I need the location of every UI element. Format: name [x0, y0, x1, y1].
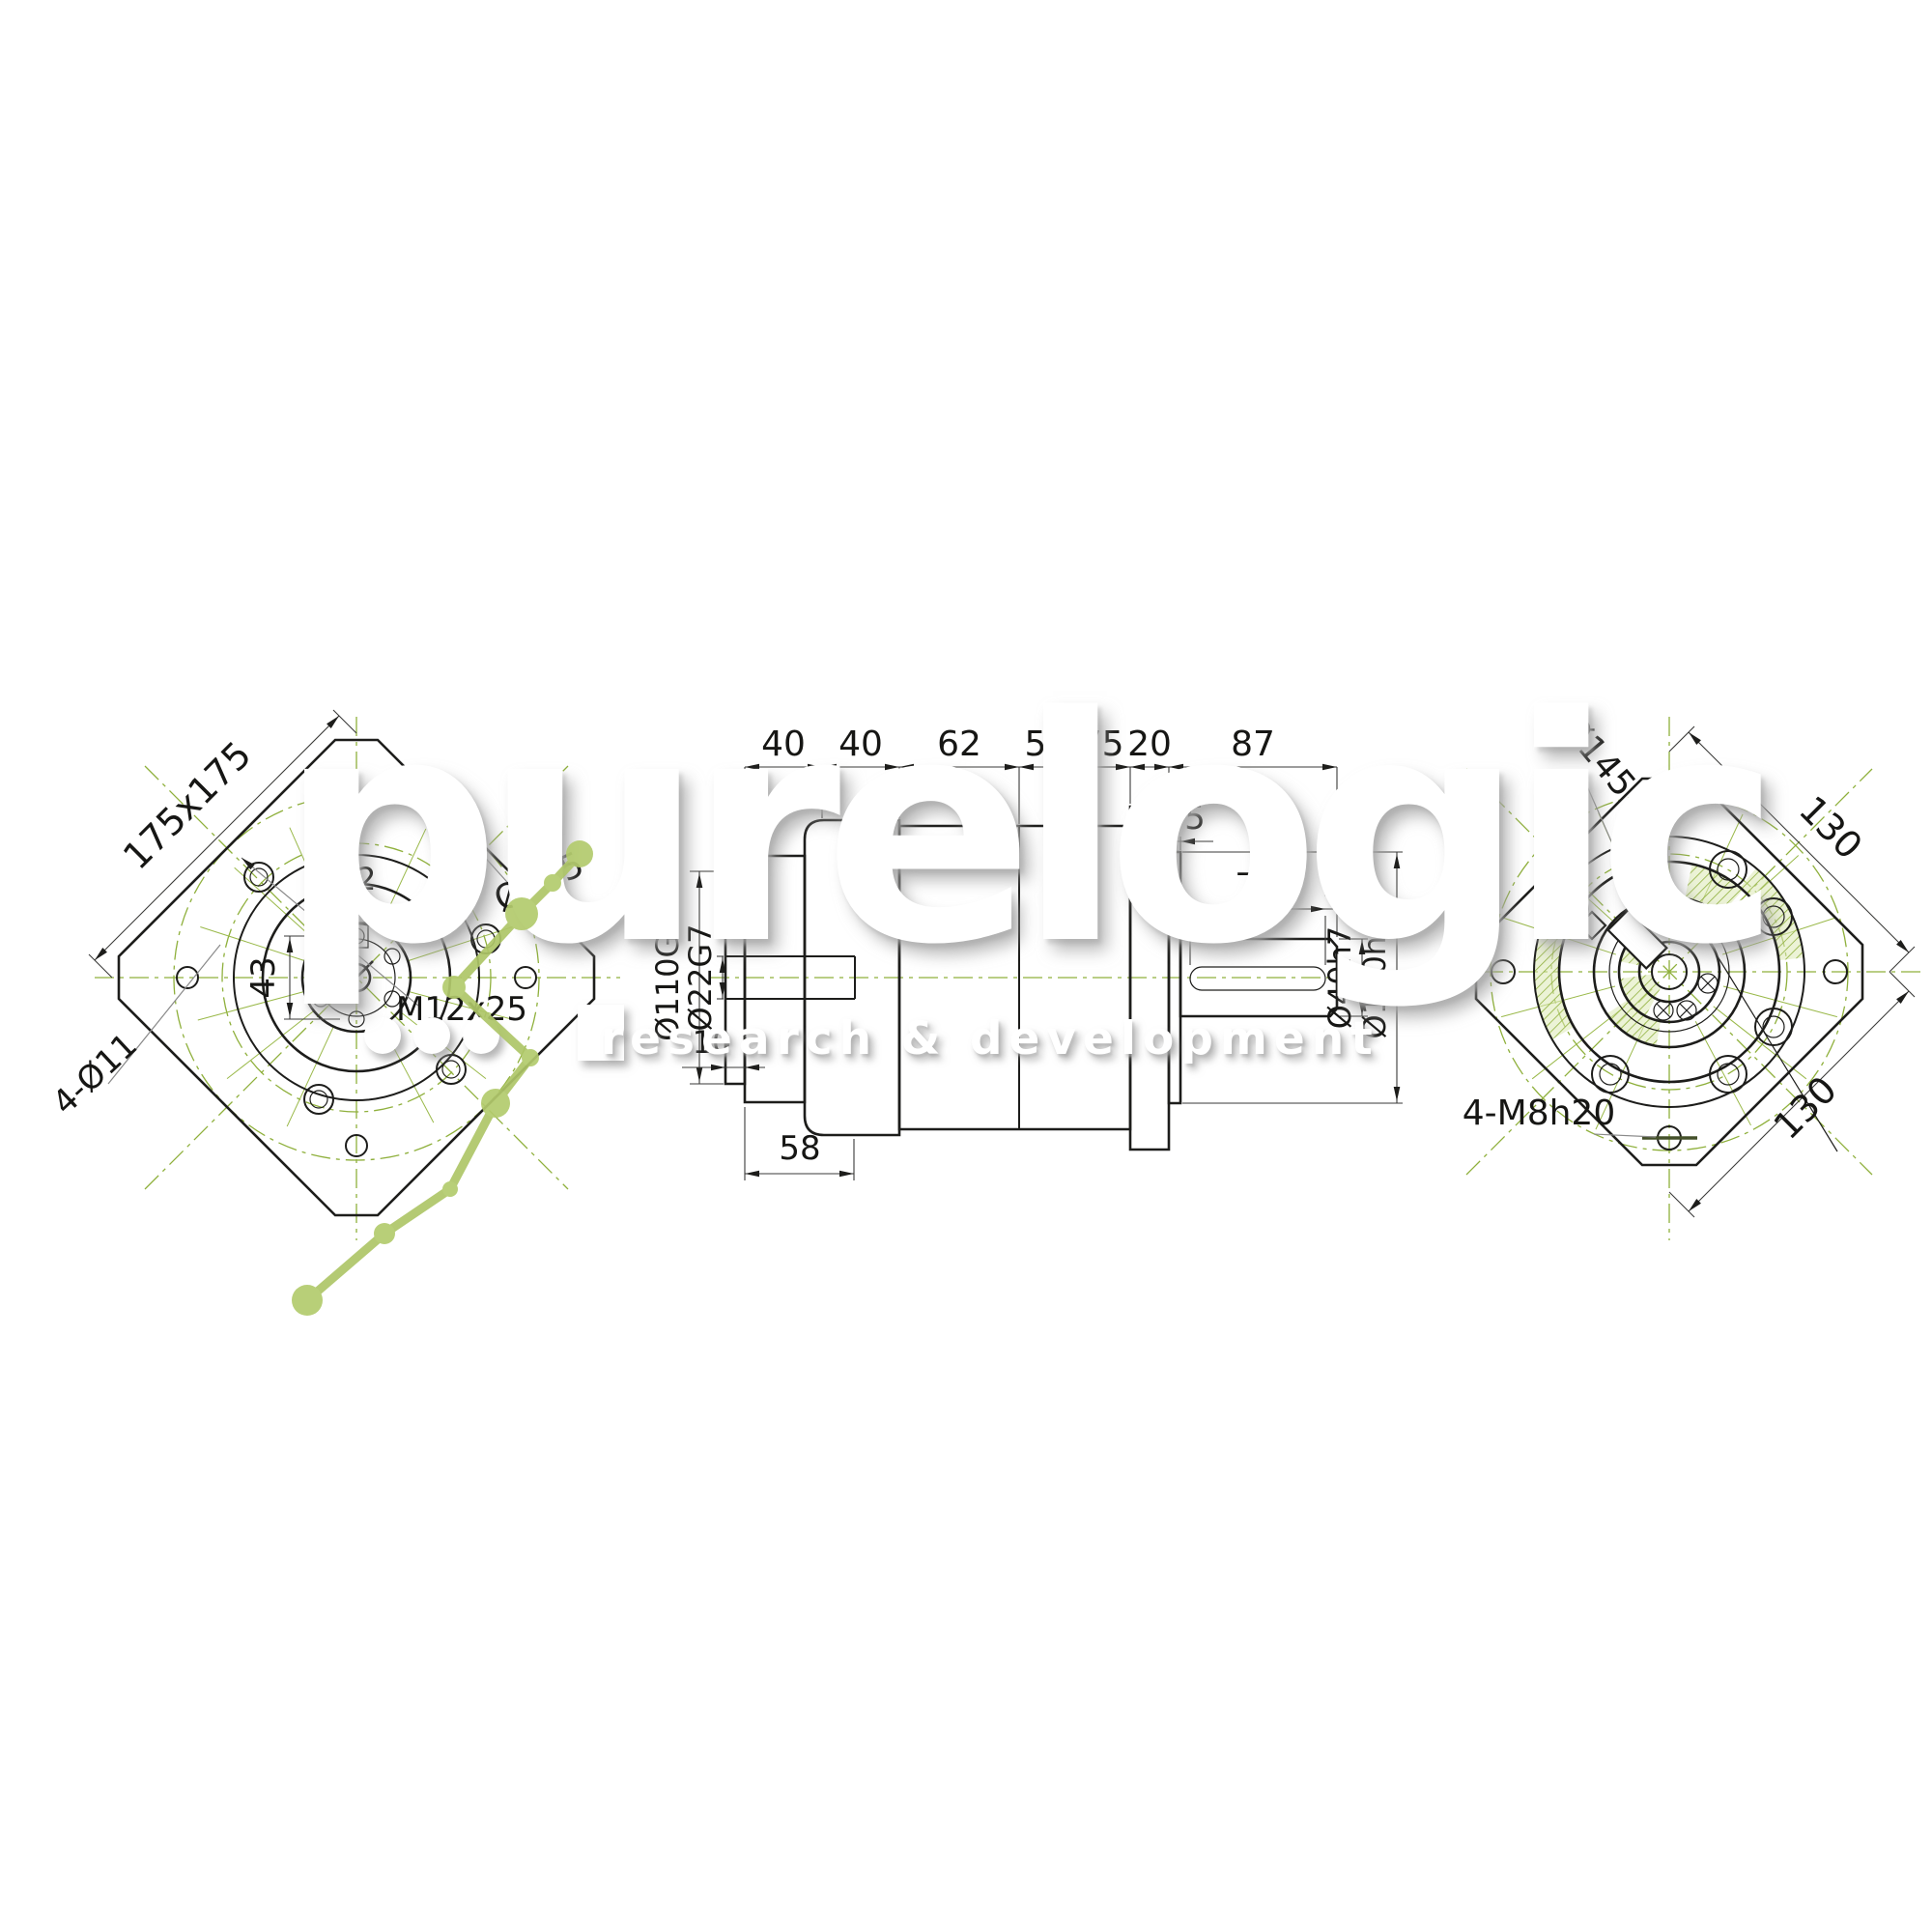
dim-130-top: 130	[1791, 788, 1870, 867]
dim-arrow	[1169, 764, 1183, 771]
side-profile-view: 40406257.7520875705Ø40h7Ø130h7Ø110G7Ø22G…	[649, 724, 1454, 1180]
dim-arrow	[330, 903, 345, 910]
dim-arrow	[1311, 906, 1325, 913]
line	[1669, 1192, 1694, 1217]
radial-ray	[407, 926, 512, 961]
dim-arrow	[287, 1003, 294, 1017]
dim-130-bottom: 130	[1766, 1068, 1845, 1148]
dim-arrow	[368, 903, 383, 910]
dim-output-pilot-dia: Ø130h7	[1356, 917, 1393, 1039]
dim-arrow	[1019, 764, 1034, 771]
dim-arrow	[822, 764, 837, 771]
circle	[310, 1091, 327, 1108]
dim-shaft-dia: Ø40h7	[1321, 926, 1358, 1030]
radial-ray	[379, 829, 426, 929]
dim-dia145: Ø145	[1552, 707, 1643, 805]
front-flange-view: 175x1751243Ø185M12x254-Ø11	[45, 710, 620, 1240]
dim-62: 62	[937, 724, 981, 764]
dim-arrow	[899, 764, 914, 771]
dim-arrow	[1005, 764, 1019, 771]
dim-arrow	[745, 1065, 759, 1071]
dim-arrow	[287, 938, 294, 952]
dim-4xd11: 4-Ø11	[45, 1026, 145, 1122]
input-flange-outline	[745, 856, 805, 1102]
dim-175x175: 175x175	[115, 733, 260, 878]
dim-arrow	[1116, 764, 1130, 771]
line	[89, 954, 112, 978]
dim-arrow	[696, 1067, 703, 1082]
shaft-keyway-slot	[1190, 967, 1325, 990]
tapped-hole	[304, 1085, 333, 1114]
dim-40b: 40	[838, 724, 883, 764]
dim-43: 43	[244, 956, 283, 998]
circle	[442, 1061, 460, 1078]
tapped-hole	[437, 1055, 466, 1084]
dim-input-pilot-dia: Ø110G7	[649, 914, 686, 1040]
dim-70: 70	[1235, 867, 1276, 905]
dim-arrow	[1394, 854, 1401, 868]
dim-input-bore-dia: Ø22G7	[682, 923, 719, 1031]
dim-4-m8h20: 4-M8h20	[1463, 1094, 1615, 1133]
dim-arrow	[711, 1065, 725, 1071]
dim-arrow	[839, 1171, 854, 1178]
technical-drawing-page: 175x1751243Ø185M12x254-Ø11 40406257.7520…	[0, 0, 1932, 1932]
dim-arrow	[1154, 838, 1169, 845]
dim-40a: 40	[761, 724, 806, 764]
technical-drawing-canvas: 175x1751243Ø185M12x254-Ø11 40406257.7520…	[0, 0, 1932, 1932]
dim-58: 58	[779, 1129, 820, 1168]
dim-arrow	[745, 1171, 759, 1178]
dim-arrow	[696, 873, 703, 888]
radial-ray	[1695, 1021, 1750, 1125]
line	[1889, 972, 1915, 997]
dim-12: 12	[337, 861, 377, 897]
dim-arrow	[1394, 1087, 1401, 1101]
dim-87: 87	[1231, 724, 1275, 764]
dim-arrow	[1130, 764, 1145, 771]
line	[1669, 726, 1694, 752]
leader-m8	[1594, 1134, 1656, 1137]
dim-arrow	[808, 764, 822, 771]
circle	[1763, 1016, 1784, 1037]
dim-5-pilot: 5	[1184, 799, 1206, 838]
dim-arrow	[1154, 764, 1169, 771]
dim-57-75: 57.75	[1024, 724, 1123, 764]
radial-ray	[290, 828, 335, 929]
dim-20: 20	[1127, 724, 1172, 764]
dim-dia185: Ø185	[488, 844, 589, 920]
dim-arrow	[1180, 838, 1195, 845]
dim-arrow	[1337, 906, 1351, 913]
dim-10: 10	[693, 1024, 732, 1061]
dim-arrow	[1322, 764, 1337, 771]
rear-flange-view: 130130Ø1454-M8h20	[1414, 707, 1924, 1240]
line	[333, 710, 356, 733]
dim-arrow	[745, 764, 759, 771]
keyway-notch	[1578, 912, 1605, 939]
hatch-wedge	[1740, 868, 1804, 960]
dim-m12x25: M12x25	[396, 990, 527, 1029]
dim-arrow	[885, 764, 899, 771]
line	[1889, 947, 1915, 972]
circle	[477, 930, 495, 948]
dim-5-key: 5	[1322, 867, 1344, 905]
dim-arrow	[1190, 906, 1205, 913]
